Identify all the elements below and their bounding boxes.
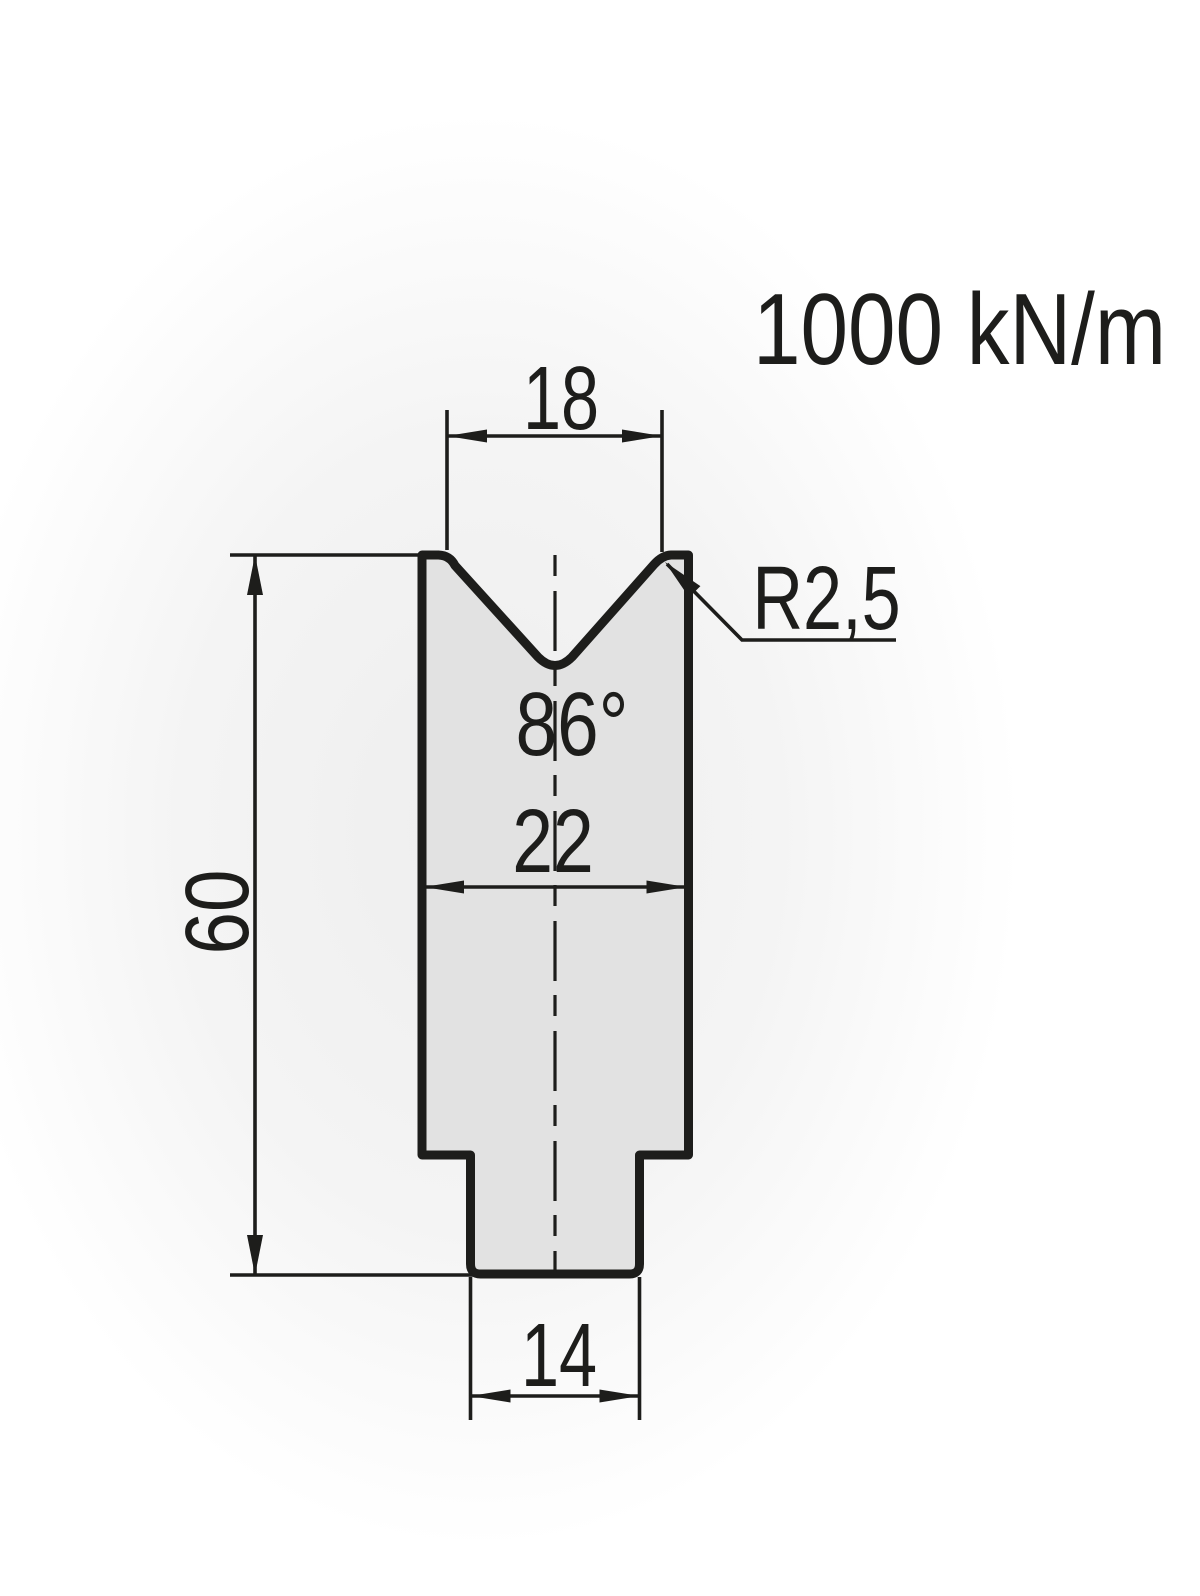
svg-text:14: 14 [521,1305,597,1405]
svg-text:60: 60 [166,869,267,954]
svg-text:86°: 86° [516,673,629,774]
svg-text:R2,5: R2,5 [752,549,900,649]
svg-text:22: 22 [512,792,594,892]
svg-text:18: 18 [523,348,599,448]
svg-text:1000 kN/m: 1000 kN/m [753,272,1166,385]
